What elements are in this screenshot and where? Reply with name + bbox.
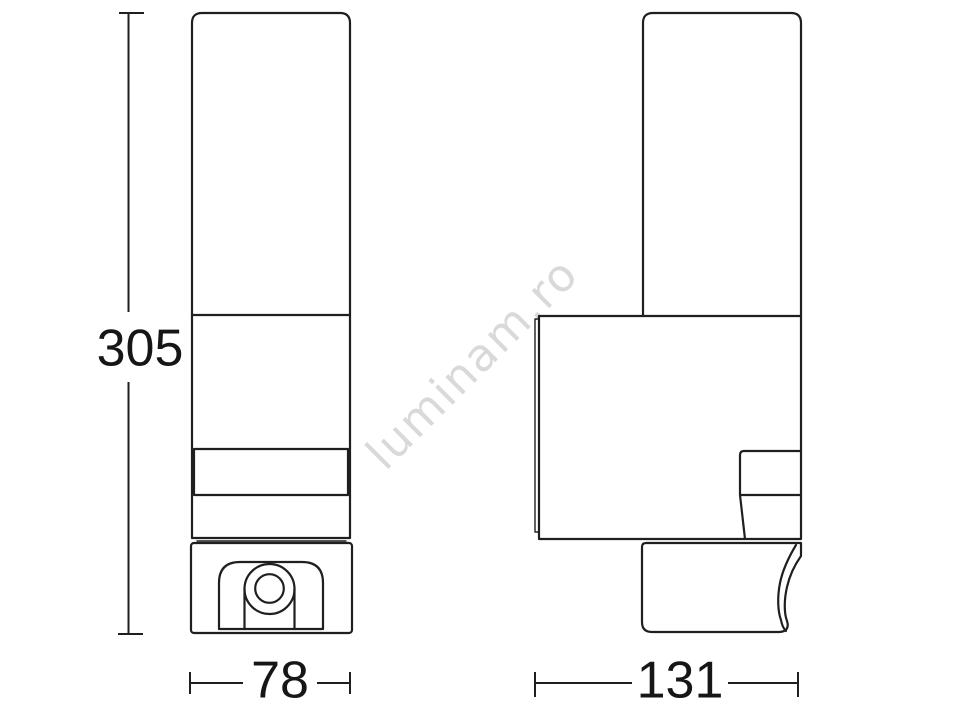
dimension-drawing: luminam.ro [0,0,960,720]
front-camera-housing [219,562,323,629]
front-base-outline [191,543,352,633]
side-view [535,13,801,632]
height-dimension-label: 305 [97,320,184,378]
side-wall-flange [535,319,539,532]
depth-dimension-label: 131 [637,652,724,710]
side-bracket-outline [539,316,801,539]
watermark: luminam.ro [356,247,589,480]
width-dimension-label: 78 [251,652,309,710]
side-tube-outline [643,13,801,316]
front-camera-lens [255,574,284,603]
front-view [191,13,352,633]
side-sensor-box [740,451,801,495]
front-body-outline [192,13,350,538]
technical-drawing-page: luminam.ro [0,0,960,720]
side-sensor-slant [740,495,745,539]
side-base-outline [642,543,801,632]
front-sensor-window [194,449,348,495]
front-camera-ball [245,564,295,614]
